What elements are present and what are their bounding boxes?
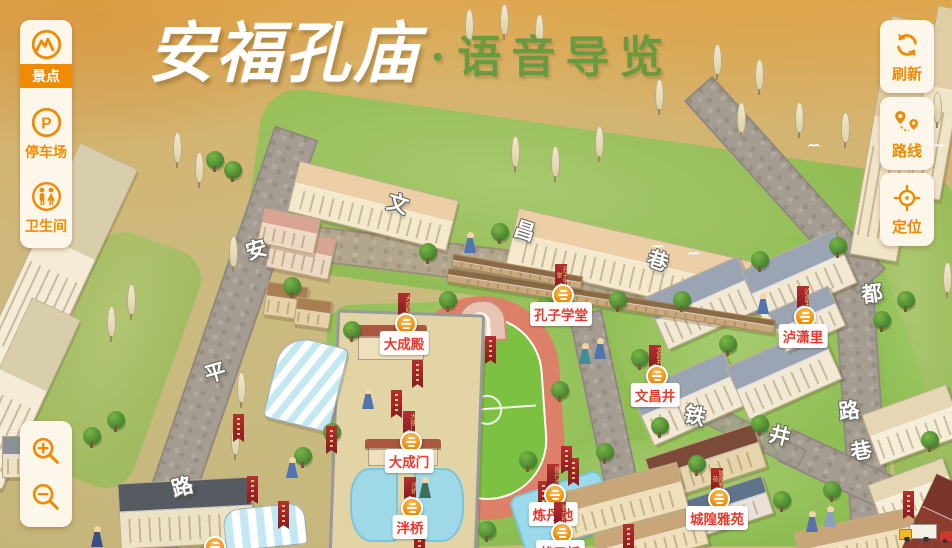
poi-label[interactable]: 泮桥: [393, 515, 428, 539]
sidebar-label-restroom[interactable]: 卫生间: [25, 216, 67, 236]
map-canvas[interactable]: 文昌巷安平路铁井都路巷 安福孔庙 ·语音导览 大成殿大成殿孔子学堂孔子学堂泸潇里…: [0, 0, 952, 548]
poi-label[interactable]: 孔子学堂: [530, 302, 592, 326]
poi-banner: 城隍雅苑: [711, 468, 723, 490]
locate-label: 定位: [892, 216, 922, 237]
poi-label[interactable]: 炼丹池: [529, 502, 578, 526]
parking-icon: P: [30, 106, 63, 139]
poi-banner: 大成门: [403, 411, 415, 433]
scenic-spots-icon: [30, 28, 63, 61]
poi-layer: 大成殿大成殿孔子学堂孔子学堂泸潇里泸潇里文昌井文昌井大成门大成门泮桥泮桥炼丹池炼…: [0, 0, 952, 548]
svg-text:P: P: [41, 115, 51, 132]
route-button[interactable]: 路线: [880, 97, 934, 170]
locate-icon: [892, 183, 922, 213]
poi-audio-marker[interactable]: [204, 536, 226, 548]
sidebar-label-parking[interactable]: 停车场: [25, 142, 67, 162]
restroom-icon: [30, 180, 63, 213]
poi-banner: 大成殿: [398, 293, 410, 315]
refresh-icon: [892, 30, 922, 60]
poi-label[interactable]: 文昌井: [631, 383, 680, 407]
poi-banner: 孔子学堂: [555, 264, 567, 286]
poi-banner: 炼丹池: [547, 464, 559, 486]
poi-label[interactable]: 泸潇里: [779, 324, 828, 348]
poi-label[interactable]: 城隍雅苑: [686, 506, 748, 530]
sidebar-item-restroom[interactable]: 卫生间: [20, 180, 72, 236]
poi-label[interactable]: 状元桥: [536, 540, 585, 548]
refresh-button[interactable]: 刷新: [880, 20, 934, 93]
refresh-label: 刷新: [892, 63, 922, 84]
poi-banner: 泸潇里: [797, 286, 809, 308]
zoom-toolbar: [20, 421, 72, 527]
sidebar-item-scenic-spots[interactable]: 景点: [20, 28, 72, 88]
route-icon: [892, 107, 922, 137]
left-toolbar: 景点 P 停车场 卫生间: [20, 20, 72, 248]
poi-label[interactable]: 大成殿: [380, 331, 429, 355]
sidebar-item-parking[interactable]: P 停车场: [20, 106, 72, 162]
poi-banner: 文昌井: [649, 345, 661, 367]
poi-banner: 状元桥: [554, 502, 566, 524]
route-label: 路线: [892, 140, 922, 161]
poi-banner: 泮桥: [404, 477, 416, 499]
poi-label[interactable]: 大成门: [385, 449, 434, 473]
zoom-out-icon[interactable]: [29, 480, 63, 514]
sidebar-label-scenic-spots[interactable]: 景点: [20, 64, 72, 88]
locate-button[interactable]: 定位: [880, 173, 934, 246]
zoom-in-icon[interactable]: [29, 434, 63, 468]
